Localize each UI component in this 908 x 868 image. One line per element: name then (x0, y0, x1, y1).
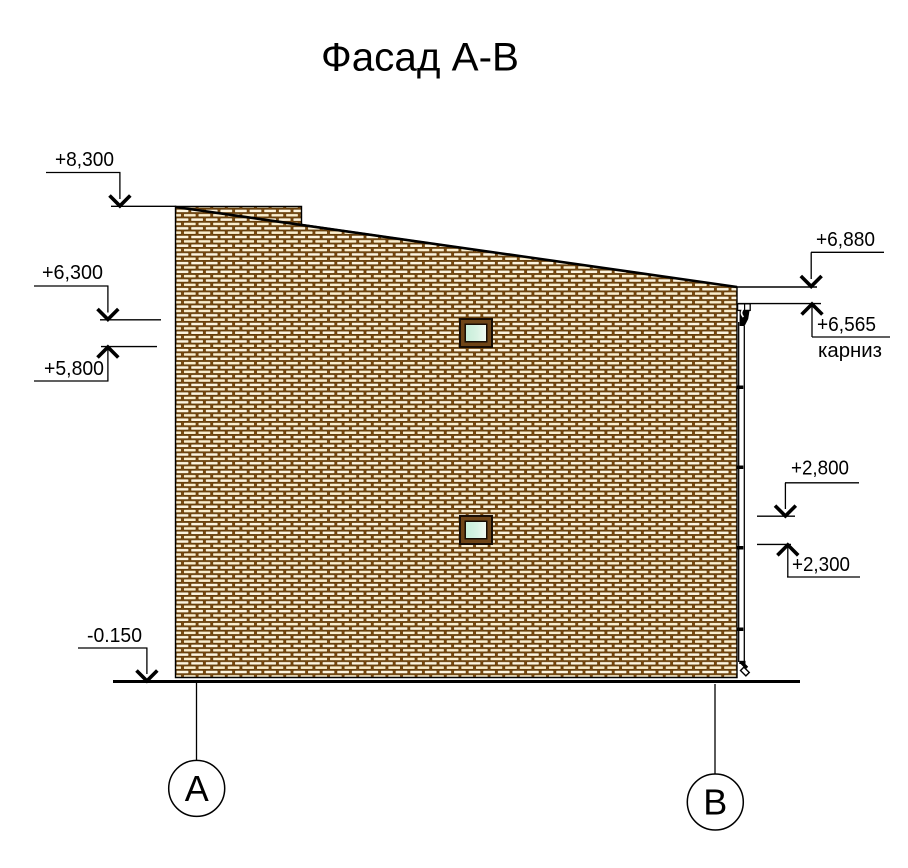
svg-text:В: В (703, 782, 727, 823)
svg-text:карниз: карниз (818, 340, 882, 362)
svg-text:+2,800: +2,800 (791, 457, 849, 479)
svg-text:+6,565: +6,565 (817, 314, 876, 336)
svg-text:-0.150: -0.150 (87, 625, 142, 647)
svg-text:+2,300: +2,300 (792, 554, 850, 576)
svg-text:+6,880: +6,880 (816, 229, 875, 251)
svg-text:+8,300: +8,300 (55, 149, 114, 171)
svg-text:А: А (185, 768, 209, 809)
svg-text:Фасад А-В: Фасад А-В (321, 36, 519, 80)
svg-text:+5,800: +5,800 (44, 358, 104, 380)
svg-text:+6,300: +6,300 (42, 262, 103, 284)
